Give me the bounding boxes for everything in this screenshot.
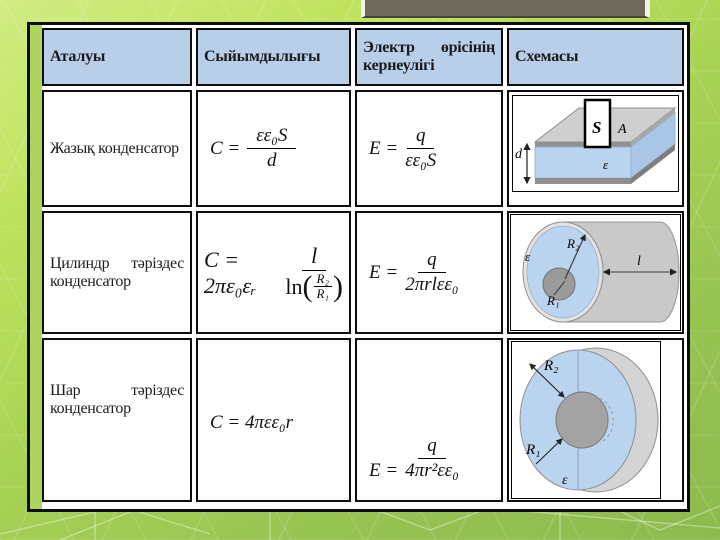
row2-cap-R1: R₁ [317, 287, 329, 301]
row1-name-cell: Жазық конденсатор [42, 90, 192, 207]
row2-cap-inner-fraction: R₂ R₁ [314, 272, 332, 302]
row2-cap-ln: ln [285, 274, 302, 299]
row3-name-line2: конденсатор [50, 400, 184, 418]
label-R1: R₁ [525, 442, 540, 458]
header-schematic-label: Схемасы [515, 48, 676, 66]
row1-field-numerator: q [407, 125, 435, 149]
row2-field-numerator: q [418, 249, 446, 273]
row2-name-word2: тәріздес [131, 255, 184, 273]
row2-capacitance-formula: C = 2πε₀εᵣ l ln ( R₂ R₁ ) [196, 211, 351, 334]
row1-field-lhs: E = [369, 138, 398, 160]
row2-cap-fraction: l ln ( R₂ R₁ ) [285, 243, 343, 301]
top-title-bar [361, 0, 650, 18]
table-grid: Аталуы Сыйымдылығы Электр өрісінің керне… [42, 28, 684, 502]
row1-capacitance-formula: C = εε₀S d [196, 90, 351, 207]
label-R2: R₂ [543, 358, 558, 374]
label-R2: R₂ [566, 236, 580, 251]
row1-cap-lhs: C = [210, 138, 240, 160]
row3-field-formula: E = q 4πr²εε₀ [355, 338, 503, 502]
header-cell-capacitance: Сыйымдылығы [196, 28, 351, 86]
row2-schematic-cell: R₂ R₁ ε l [507, 211, 684, 334]
row2-field-formula: E = q 2πrlεε₀ [355, 211, 503, 334]
row2-field-lhs: E = [369, 262, 398, 284]
row2-name-word1: Цилиндр [50, 255, 109, 273]
label-epsilon: ε [525, 249, 531, 264]
label-d: d [515, 147, 523, 162]
row3-field-fraction: q 4πr²εε₀ [405, 435, 459, 482]
spherical-capacitor-diagram: R₂ R₁ ε [511, 341, 661, 499]
row2-cap-paren-close: ) [333, 272, 343, 302]
row1-schematic-cell: d S A ε [507, 90, 684, 207]
row1-field-denominator: εε₀S [405, 149, 436, 172]
row2-cap-numerator: l [302, 243, 326, 270]
header-cell-name: Аталуы [42, 28, 192, 86]
header-capacitance-label: Сыйымдылығы [204, 48, 343, 66]
row3-schematic-cell: R₂ R₁ ε [507, 338, 684, 502]
row1-field-formula: E = q εε₀S [355, 90, 503, 207]
row3-name-word1: Шар [50, 382, 80, 400]
row2-field-fraction: q 2πrlεε₀ [405, 249, 458, 296]
header-field-word1: Электр [363, 39, 415, 57]
label-l: l [637, 254, 641, 269]
row3-capacitance-formula: C = 4πεε₀r [196, 338, 351, 502]
row2-field-denominator: 2πrlεε₀ [405, 273, 458, 296]
capacitor-table: Аталуы Сыйымдылығы Электр өрісінің керне… [27, 22, 690, 512]
row1-cap-numerator: εε₀S [247, 125, 296, 149]
row1-field-fraction: q εε₀S [405, 125, 436, 172]
header-cell-schematic: Схемасы [507, 28, 684, 86]
label-A: A [617, 122, 627, 137]
flat-capacitor-diagram: d S A ε [512, 95, 679, 192]
row3-field-numerator: q [418, 435, 446, 459]
row2-cap-denominator: ln ( R₂ R₁ ) [285, 271, 343, 302]
row2-cap-lhs: C = 2πε₀εᵣ [204, 247, 278, 299]
header-field-word2: өрісінің [441, 39, 495, 57]
row3-field-lhs: E = [369, 460, 398, 482]
row2-cap-R2: R₂ [314, 272, 332, 287]
bottom-plate-edge [535, 178, 631, 184]
header-field-line2: кернеулігі [363, 57, 495, 75]
dielectric-front [535, 147, 631, 178]
top-plate-edge [535, 142, 631, 147]
sphere-inner-conductor [556, 392, 608, 448]
label-epsilon: ε [603, 157, 609, 172]
row2-name-line1: Цилиндр тәріздес [50, 255, 184, 273]
row3-name-line1: Шар тәріздес [50, 382, 184, 400]
row3-name-cell: Шар тәріздес конденсатор [42, 338, 192, 502]
row1-name: Жазық конденсатор [50, 140, 184, 158]
label-epsilon: ε [562, 473, 568, 488]
label-S: S [592, 118, 601, 137]
row2-cap-paren-open: ( [303, 272, 313, 302]
header-field-line1: Электр өрісінің [363, 39, 495, 57]
row2-name-cell: Цилиндр тәріздес конденсатор [42, 211, 192, 334]
row3-field-denominator: 4πr²εε₀ [405, 459, 459, 482]
label-R1: R₁ [546, 293, 559, 308]
header-name-label: Аталуы [50, 48, 184, 66]
row1-cap-denominator: d [267, 149, 277, 172]
slide: { "table": { "headers": { "name": "Аталу… [0, 0, 720, 540]
row3-name-word2: тәріздес [131, 382, 184, 400]
row1-cap-fraction: εε₀S d [247, 125, 296, 172]
header-cell-field: Электр өрісінің кернеулігі [355, 28, 503, 86]
row3-cap-text: C = 4πεε₀r [210, 412, 293, 434]
cylindrical-capacitor-diagram: R₂ R₁ ε l [510, 214, 681, 331]
row2-name-line2: конденсатор [50, 273, 184, 291]
